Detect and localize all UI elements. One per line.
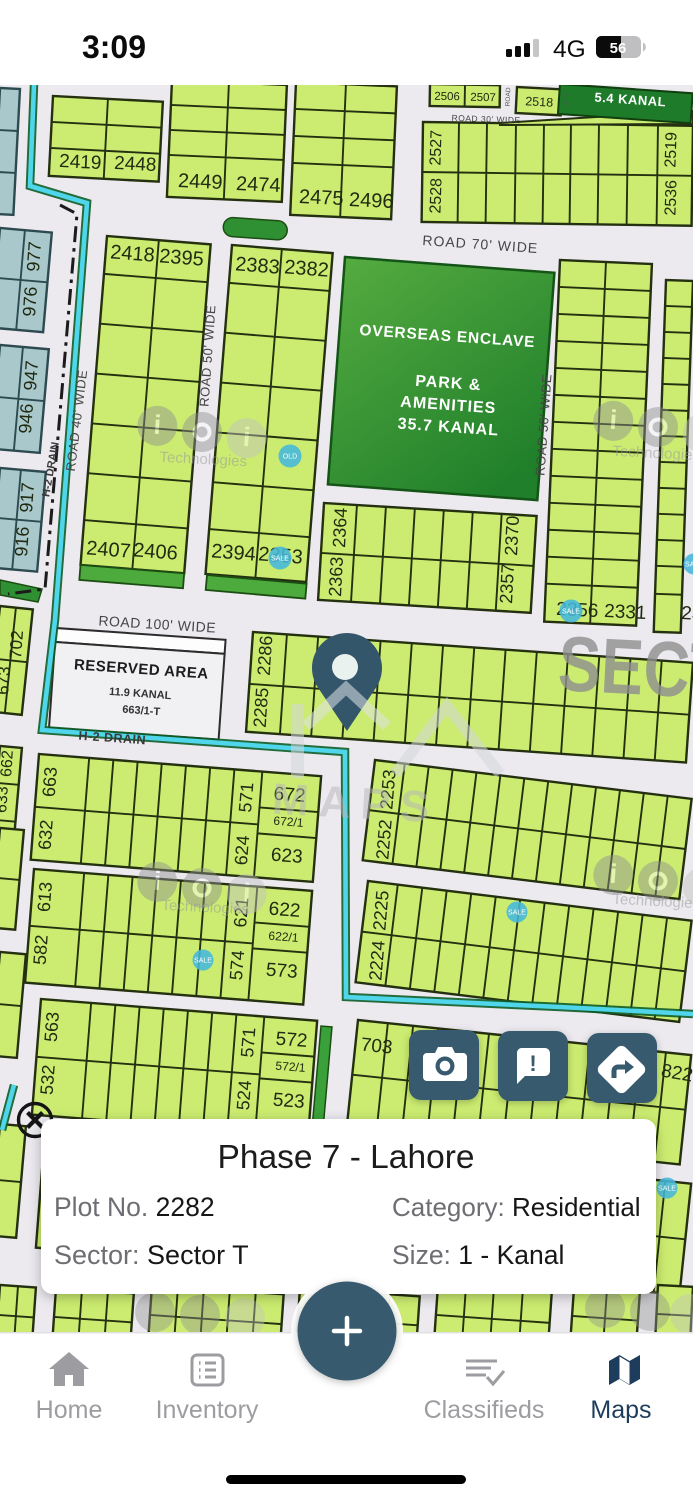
svg-text:622/1: 622/1 [268,929,299,945]
svg-text:SALE: SALE [194,958,212,965]
svg-text:2528: 2528 [427,178,445,214]
svg-text:2364: 2364 [329,507,351,548]
svg-text:2418: 2418 [109,241,155,266]
svg-text:703: 703 [360,1034,394,1058]
svg-text:SALE: SALE [658,1186,676,1193]
svg-text:2474: 2474 [236,173,281,197]
svg-text:977: 977 [23,241,45,272]
svg-text:673: 673 [0,666,14,696]
svg-text:SALE: SALE [562,609,580,616]
svg-text:572: 572 [275,1029,308,1052]
svg-text:2344: 2344 [681,603,693,626]
svg-text:917: 917 [16,482,38,513]
svg-text:613: 613 [34,881,56,913]
svg-text:2363: 2363 [325,556,347,597]
svg-text:946: 946 [15,403,37,434]
svg-text:976: 976 [19,286,41,317]
svg-text:2536: 2536 [662,180,680,216]
svg-text:Sector: Sector T: Sector: Sector T [54,1240,249,1270]
svg-text:Size: 1 - Kanal: Size: 1 - Kanal [392,1240,564,1270]
svg-text:947: 947 [20,360,42,391]
svg-text:OLD: OLD [283,454,297,461]
svg-text:2518: 2518 [525,94,554,109]
svg-text:2496: 2496 [349,189,394,213]
svg-text:2527: 2527 [427,130,445,166]
svg-text:2448: 2448 [114,153,157,176]
svg-text:ROAD: ROAD [505,87,513,106]
svg-text:Home: Home [36,1396,103,1424]
svg-text:2406: 2406 [132,539,178,564]
svg-text:573: 573 [265,960,298,983]
svg-text:623: 623 [270,845,303,868]
svg-text:2224: 2224 [365,940,388,982]
svg-text:Phase 7 - Lahore: Phase 7 - Lahore [217,1139,474,1176]
svg-text:632: 632 [35,819,57,851]
svg-text:574: 574 [226,949,248,981]
svg-text:2331: 2331 [604,601,647,624]
svg-text:663: 663 [39,766,61,798]
svg-text:572/1: 572/1 [275,1059,306,1075]
svg-text:2383: 2383 [234,253,280,278]
svg-text:SALE: SALE [685,562,693,569]
svg-text:SALE: SALE [271,556,289,563]
svg-text:633: 633 [0,786,12,814]
svg-text:2519: 2519 [662,132,680,168]
svg-text:Maps: Maps [590,1396,651,1424]
svg-text:SALE: SALE [508,910,526,917]
svg-text:532: 532 [37,1064,59,1096]
svg-text:RES: RES [563,92,570,106]
svg-text:Classifieds: Classifieds [424,1396,545,1424]
svg-text:2407: 2407 [85,537,131,562]
svg-text:Inventory: Inventory [156,1396,259,1424]
svg-text:4G: 4G [553,36,586,63]
svg-text:2394: 2394 [210,540,256,565]
svg-text:702: 702 [6,630,27,660]
svg-text:2419: 2419 [59,151,102,174]
svg-text:662: 662 [0,750,17,778]
svg-text:2449: 2449 [178,170,223,194]
svg-text:3:09: 3:09 [82,29,146,65]
svg-text:2506: 2506 [434,91,460,103]
svg-text:2382: 2382 [283,256,329,281]
svg-text:2225: 2225 [369,890,392,932]
svg-text:624: 624 [231,834,253,866]
svg-text:563: 563 [41,1011,63,1043]
svg-text:SECT: SECT [556,620,693,716]
svg-text:56: 56 [610,40,627,57]
svg-text:MAPS: MAPS [271,775,440,833]
svg-text:!: ! [529,1051,536,1076]
svg-text:571: 571 [237,1027,259,1059]
svg-text:2357: 2357 [496,563,518,604]
svg-text:Plot No. 2282: Plot No. 2282 [54,1192,215,1222]
svg-text:622: 622 [268,899,301,922]
svg-text:2475: 2475 [299,186,344,210]
svg-text:524: 524 [233,1079,255,1111]
svg-text:582: 582 [30,934,52,966]
svg-text:2370: 2370 [501,515,523,556]
svg-text:916: 916 [11,526,33,557]
svg-text:2286: 2286 [254,635,277,676]
svg-text:2395: 2395 [158,245,204,270]
svg-text:2285: 2285 [250,687,273,728]
svg-text:2507: 2507 [470,92,496,104]
svg-text:571: 571 [235,782,257,814]
svg-text:Category: Residential: Category: Residential [392,1192,641,1222]
svg-text:523: 523 [272,1090,305,1113]
